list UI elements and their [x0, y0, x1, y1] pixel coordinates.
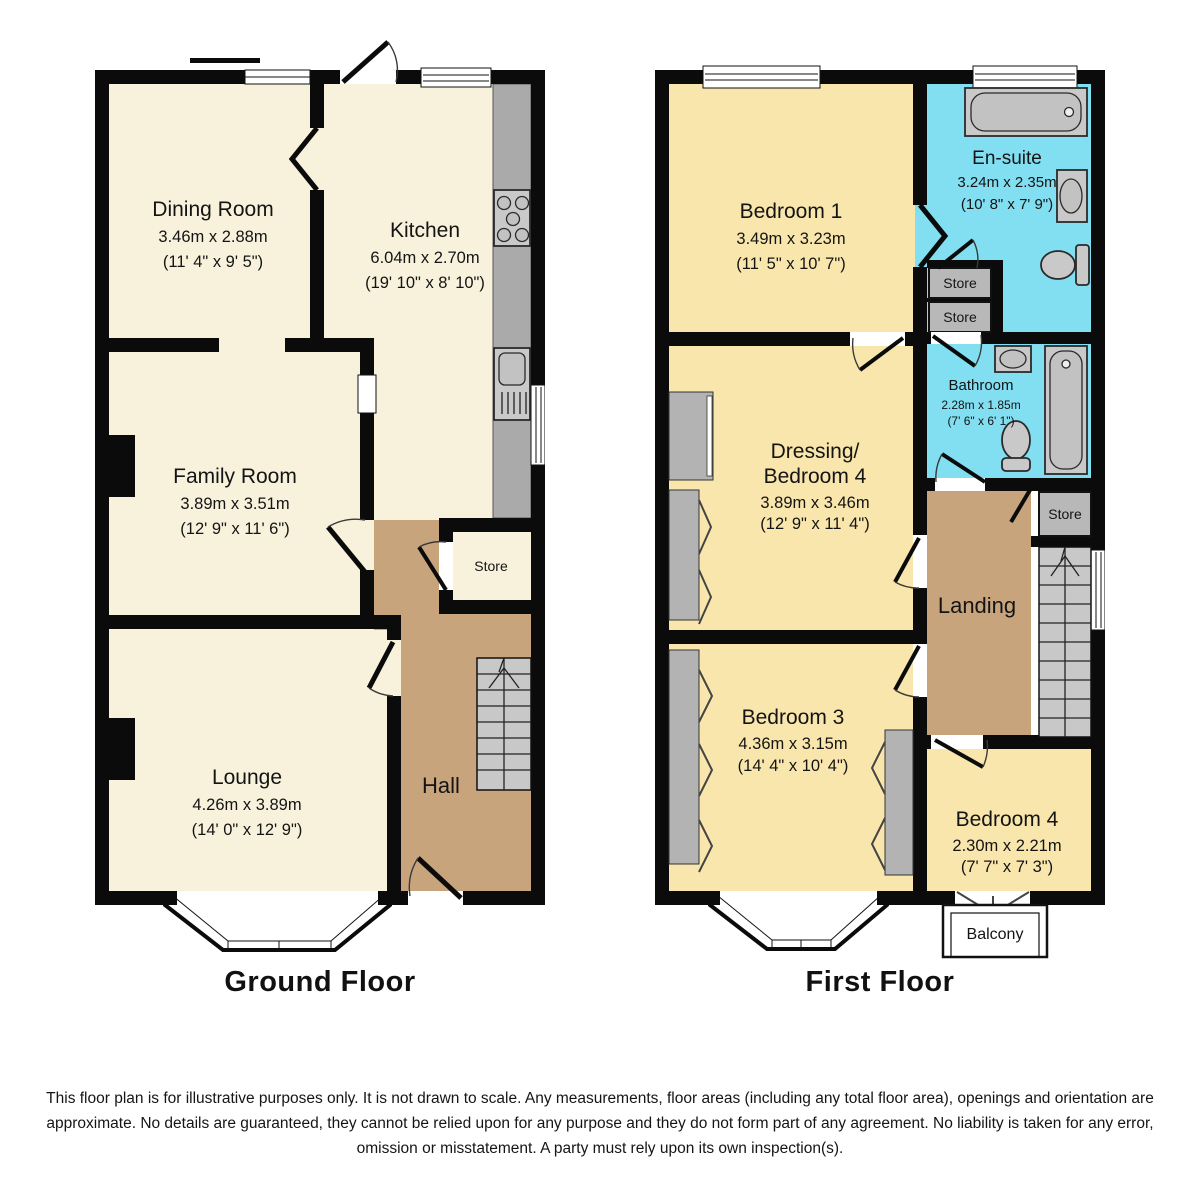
kitchen-counter [493, 84, 531, 518]
bathroom-imperial: (7' 6" x 6' 1") [947, 414, 1014, 428]
ensuite-label: En-suite [972, 148, 1042, 169]
bathroom-sink [995, 346, 1031, 372]
bathroom-metric: 2.28m x 1.85m [941, 398, 1020, 412]
dressing-imperial: (12' 9" x 11' 4") [760, 515, 869, 533]
kitchen-imperial: (19' 10" x 8' 10") [365, 274, 485, 292]
dining-room-imperial: (11' 4" x 9' 5") [163, 253, 263, 271]
bathroom-label: Bathroom [948, 377, 1013, 394]
family-chimney-breast [109, 435, 135, 497]
first-stairs [1039, 547, 1091, 737]
lounge-bay-window [165, 891, 390, 950]
kitchen-metric: 6.04m x 2.70m [370, 249, 479, 267]
bedroom4-metric: 2.30m x 2.21m [952, 837, 1061, 855]
first-floor-plan: Bedroom 1 3.49m x 3.23m (11' 5" x 10' 7"… [655, 30, 1105, 970]
ensuite-bath [965, 88, 1087, 136]
bedroom1-label: Bedroom 1 [740, 200, 843, 223]
bedroom3-bay-window [710, 891, 887, 949]
first-floor-title: First Floor [655, 966, 1105, 999]
bedroom3-imperial: (14' 4" x 10' 4") [738, 757, 849, 775]
ground-floor-title: Ground Floor [95, 966, 545, 999]
bedroom4-label: Bedroom 4 [956, 808, 1059, 831]
serving-hatch [358, 375, 376, 413]
ground-store-label: Store [474, 558, 508, 574]
bedroom3-metric: 4.36m x 3.15m [738, 735, 847, 753]
family-room-label: Family Room [173, 465, 297, 488]
lounge-label: Lounge [212, 766, 282, 789]
store2-label: Store [943, 309, 977, 325]
ensuite-window [973, 66, 1077, 88]
dressing-metric: 3.89m x 3.46m [760, 494, 869, 512]
ground-floor-plan: Dining Room 3.46m x 2.88m (11' 4" x 9' 5… [95, 30, 545, 970]
dining-window [245, 70, 310, 84]
store1-label: Store [943, 275, 977, 291]
stairs-window [1091, 550, 1105, 630]
ensuite-sink [1057, 170, 1087, 222]
bathroom-bath [1045, 346, 1087, 474]
dining-room-label: Dining Room [152, 198, 273, 221]
disclaimer-text: This floor plan is for illustrative purp… [15, 1086, 1185, 1161]
dining-window-bar [190, 58, 260, 63]
balcony-label: Balcony [967, 926, 1024, 943]
kitchen-window [421, 68, 491, 87]
store-landing-label: Store [1048, 506, 1082, 522]
bathroom-toilet [1002, 421, 1030, 471]
ensuite-metric: 3.24m x 2.35m [957, 174, 1056, 191]
bedroom4-imperial: (7' 7" x 7' 3") [961, 858, 1053, 876]
kitchen-label: Kitchen [390, 219, 460, 242]
bedroom3-label: Bedroom 3 [742, 706, 845, 729]
hall-label: Hall [422, 773, 460, 798]
kitchen-back-door [340, 42, 397, 84]
dining-room-metric: 3.46m x 2.88m [158, 228, 267, 246]
family-room-imperial: (12' 9" x 11' 6") [180, 520, 289, 538]
dressing-label-line2: Bedroom 4 [764, 465, 867, 488]
hob [494, 190, 530, 246]
family-room-metric: 3.89m x 3.51m [180, 495, 289, 513]
bedroom1-metric: 3.49m x 3.23m [736, 230, 845, 248]
lounge-metric: 4.26m x 3.89m [192, 796, 301, 814]
kitchen-side-window [531, 385, 545, 465]
bedroom1-window [703, 66, 820, 88]
lounge-imperial: (14' 0" x 12' 9") [192, 821, 303, 839]
landing-label: Landing [938, 593, 1016, 618]
ground-stairs [477, 658, 531, 790]
kitchen-sink [494, 348, 530, 420]
dressing-label-line1: Dressing/ [771, 440, 860, 463]
lounge-chimney-breast [109, 718, 135, 780]
ensuite-imperial: (10' 8" x 7' 9") [961, 196, 1053, 213]
bedroom1-imperial: (11' 5" x 10' 7") [736, 255, 845, 273]
